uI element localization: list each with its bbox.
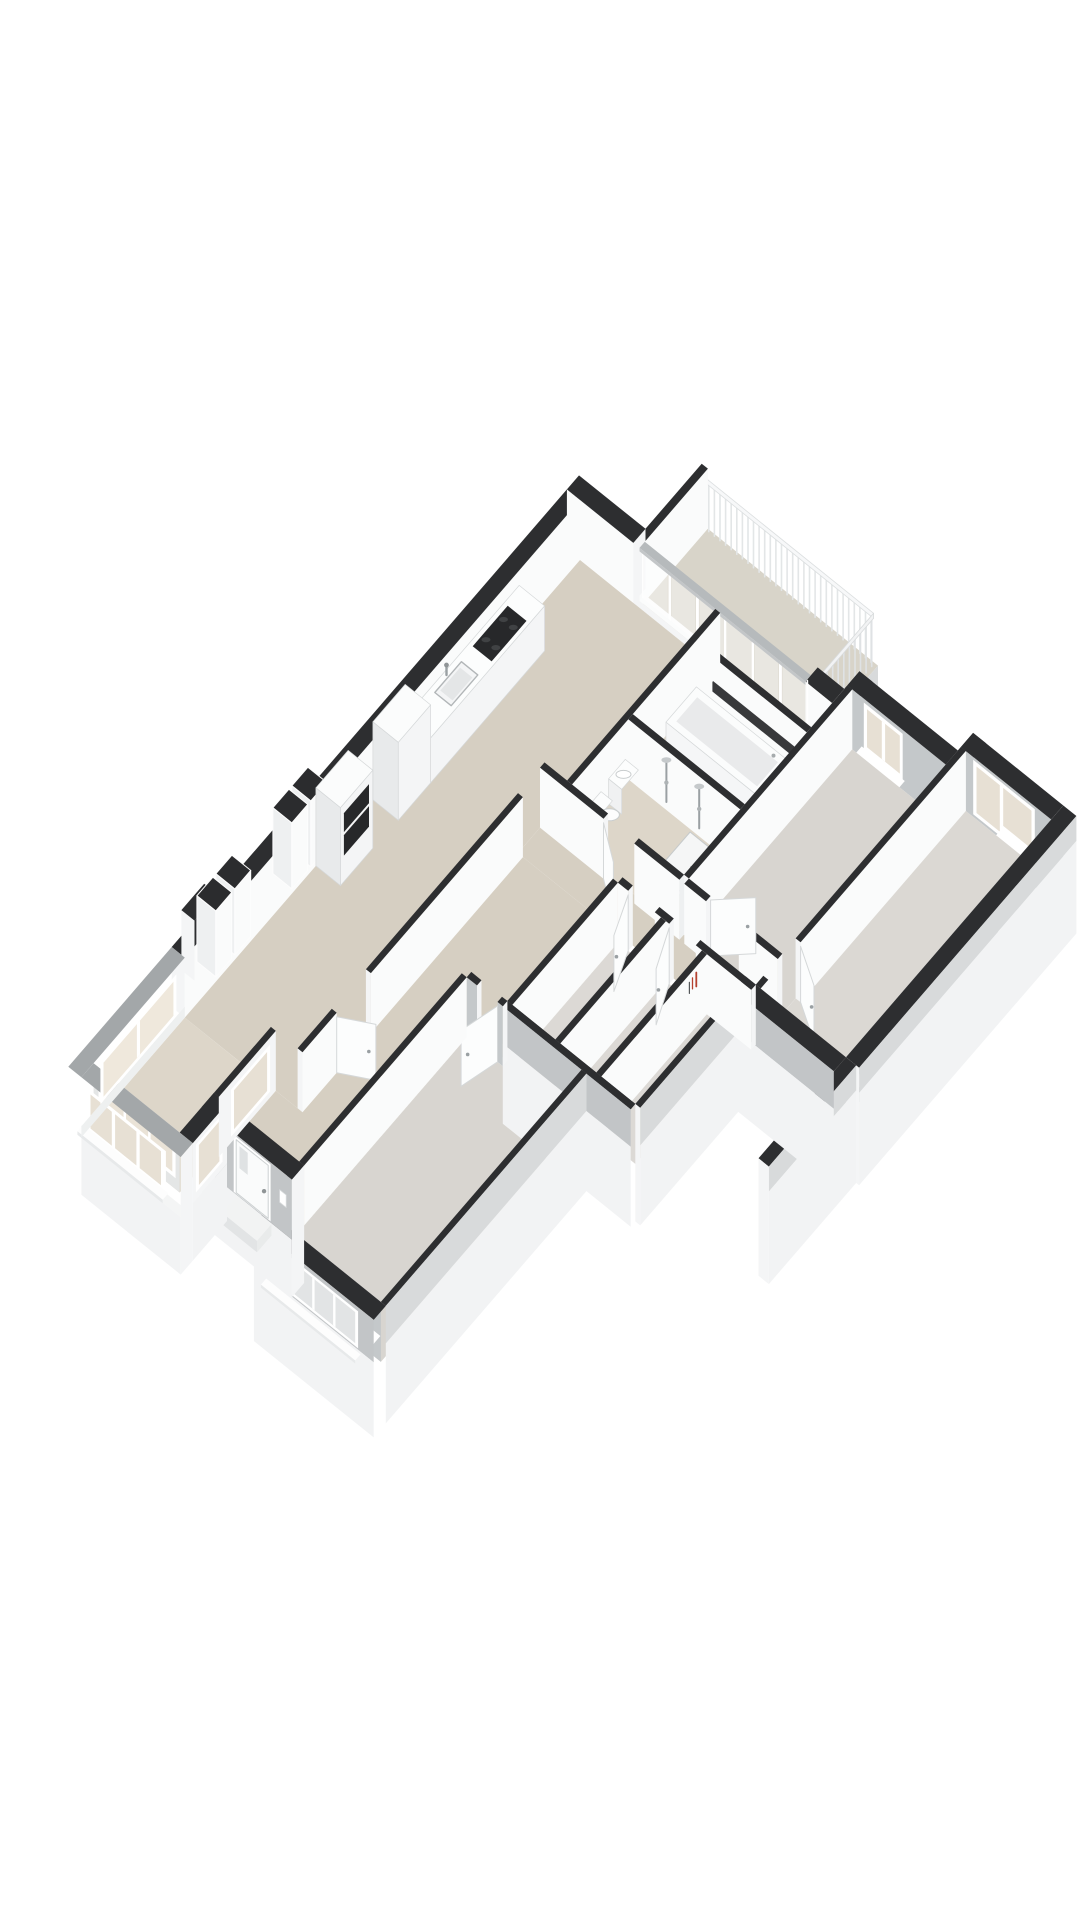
living-room-door — [337, 1017, 376, 1081]
living-hall-wall — [298, 1048, 303, 1112]
wall-pilaster — [181, 910, 194, 981]
bath-south-wall — [679, 875, 684, 940]
apartment-floorplan-svg — [0, 0, 1080, 1920]
floorplan-3d-render — [0, 0, 1080, 1920]
cells-north-wall — [669, 919, 674, 984]
bedroom1-west-wall — [796, 938, 801, 1002]
cells-north-wall — [751, 985, 756, 1050]
cells-north-wall — [628, 886, 633, 951]
